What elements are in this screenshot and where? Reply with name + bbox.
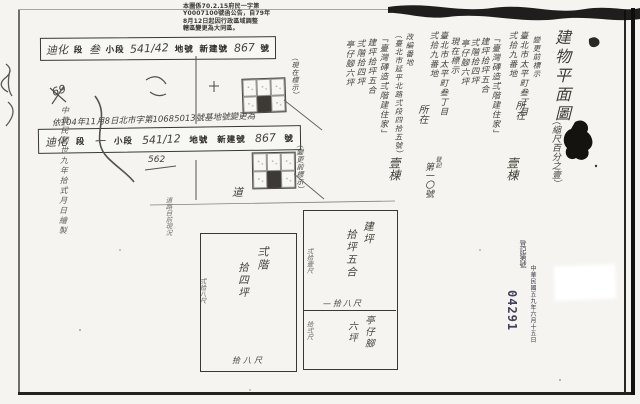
road-character: 道 (232, 184, 243, 200)
lot-number-stamp-top: 迪化 段 叁 小段 541/42 地號 新建號 867 號 (40, 36, 276, 61)
paper-speck (479, 249, 481, 251)
current-building-description: 「臺灣磚造弍階建住家」 (377, 34, 389, 139)
second-floor-area: 拾四坪 (236, 262, 251, 300)
current-building-count: 壹棟 (386, 157, 403, 181)
second-floor-side-dimension: 弍拾八尺 (197, 278, 207, 304)
ground-floor-area: 拾坪五合 (344, 229, 359, 279)
drawing-date-note: 中華民國世九年拾式月日繪製 (57, 106, 71, 276)
plan-arcade-divider (303, 310, 396, 311)
margin-scribble (1, 64, 13, 126)
sketch-baseline (150, 201, 395, 205)
ground-floor-side-dimension: 弍拾壹尺 (304, 248, 314, 274)
lot-label: 地號 (189, 133, 208, 145)
notice-line: 轄區變更為大同區。 (183, 25, 323, 32)
registration-number-note: 第一〇號 (422, 162, 435, 198)
document-title: 建物平面圖 (549, 29, 573, 124)
new-building-label: 新建號 (199, 42, 228, 54)
scale-note: （縮尺百分之壹） (549, 116, 562, 188)
section-label: 段 (74, 43, 84, 55)
current-area-second-floor: 弍階拾四坪 (354, 39, 366, 87)
second-floor-width-dimension: 拾八尺 (232, 355, 265, 366)
serial-number-stamp: 04291 (502, 291, 518, 335)
paper-speck (559, 379, 561, 381)
border-right-outer (631, 8, 635, 395)
arcade-name: 亭仔腳 (361, 315, 375, 350)
border-bottom (18, 392, 634, 395)
second-floor-name: 弍階 (254, 246, 270, 272)
subsection-name: 一 (94, 132, 106, 149)
current-area-total: 建坪拾坪五合 (365, 38, 377, 95)
registration-stamp-head: 登記第號 (518, 240, 528, 268)
new-building-label: 新建號 (217, 132, 246, 144)
new-building-number: 867 (233, 41, 255, 55)
new-building-number: 867 (254, 131, 276, 145)
scanned-building-plan-document: 本圖係70.2.15府民一字第 Y0007100號函公告，自79年 8月12日起… (0, 0, 640, 404)
number-label: 號 (284, 132, 294, 144)
paper-speck (79, 329, 81, 331)
before-indication-label: （變更前標示） (295, 141, 305, 207)
arcade-area: 六坪 (344, 321, 358, 344)
plus-mark (209, 81, 219, 92)
road-condition-note: 道路目前現況 (163, 197, 173, 259)
ink-mark-small (589, 37, 600, 47)
paper-speck (249, 389, 251, 391)
number-label: 號 (260, 42, 270, 54)
mini-map-stamp-current (241, 77, 286, 114)
page-mark-69: 69 (50, 82, 67, 99)
current-header: 現在標示 (448, 37, 460, 75)
before-location-label: 所在 (511, 100, 526, 120)
scribble-curve (146, 77, 166, 96)
ground-floor-width-dimension: —拾八尺 (323, 298, 363, 309)
district-change-notice: 本圖係70.2.15府民一字第 Y0007100號函公告，自79年 8月12日起… (183, 3, 323, 33)
subnumber-underline (145, 166, 176, 170)
ink-speck (595, 165, 597, 167)
lot-number-stamp-middle: 迪化 段 一 小段 541/12 地號 新建號 867 號 (38, 125, 301, 154)
current-area-arcade: 亭仔腳六坪 (343, 40, 355, 88)
before-address-line2: 弍拾九番地 (506, 31, 518, 79)
paper-speck (119, 249, 121, 251)
before-building-count: 壹棟 (504, 157, 521, 181)
ink-blot (564, 120, 593, 159)
mini-map-stamp-before (252, 152, 297, 190)
lot-subnumber-note: 562 (148, 155, 165, 165)
arcade-side-dimension: 拾弍尺 (304, 321, 314, 341)
ground-floor-name: 建坪 (361, 221, 376, 246)
current-new-address: （臺北市延平北路弍段四拾五號） (393, 31, 404, 159)
current-address-line2: 弍拾九番地 (427, 31, 439, 79)
registration-stamp-date: 中華民國五九年六月十五日 (528, 265, 537, 343)
lot-number: 541/12 (142, 132, 181, 147)
border-left (18, 10, 20, 394)
serial-number: 04291 (505, 290, 519, 306)
current-indication-label: （現在標示） (290, 54, 300, 112)
current-location-label: 所在 (414, 104, 429, 124)
lot-label: 地號 (175, 42, 194, 54)
notice-line: Y0007100號函公告，自79年 (183, 10, 323, 17)
whiteout-patch (555, 266, 614, 299)
section-name: 迪化 (46, 41, 69, 58)
subsection-label: 小段 (106, 43, 125, 55)
subsection-name: 叁 (89, 41, 101, 57)
subsection-label: 小段 (114, 134, 133, 146)
plan-second-floor-outline (200, 233, 297, 372)
scan-smear-artifact (388, 5, 640, 20)
section-label: 段 (76, 135, 86, 147)
border-right-inner (624, 10, 626, 393)
before-header: 變更前標示 (531, 36, 542, 79)
current-renumber-label: 改編番地 (404, 33, 415, 67)
lot-number: 541/42 (130, 41, 169, 56)
before-building-description: 「臺灣磚造弍階建住家」 (489, 34, 501, 139)
